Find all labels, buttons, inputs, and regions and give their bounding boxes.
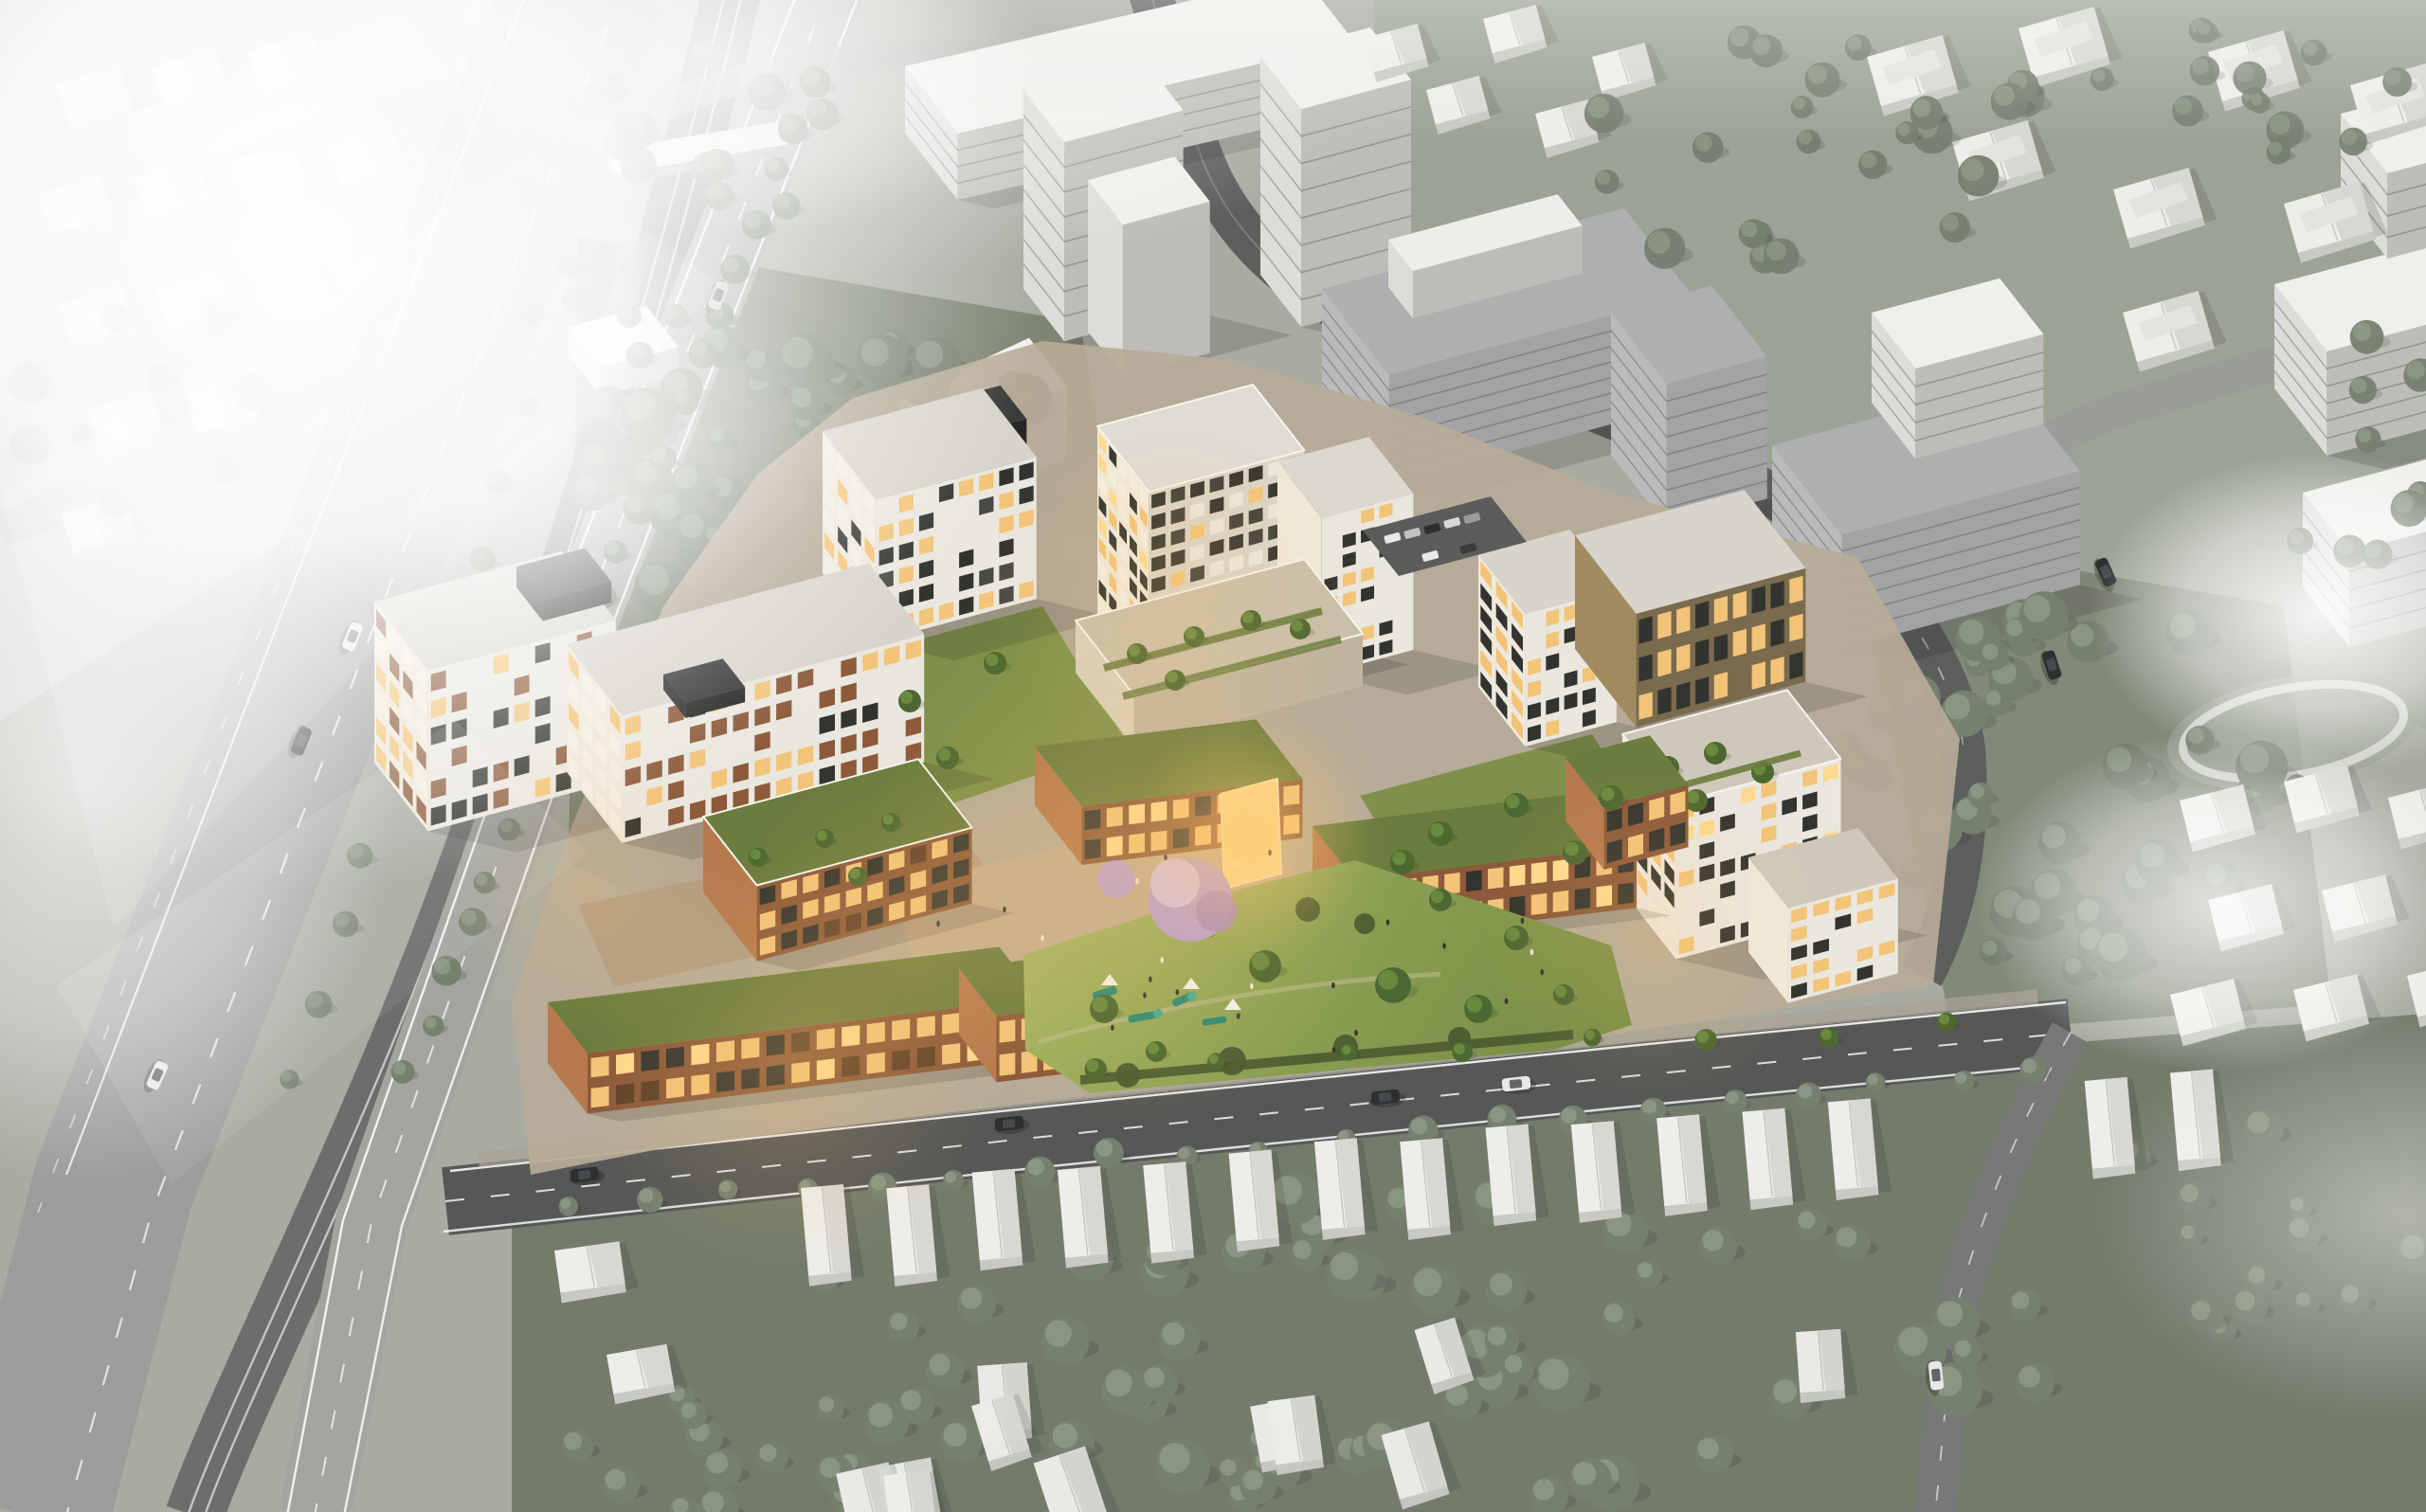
- tree-highlight: [1293, 1240, 1312, 1259]
- window: [1752, 623, 1765, 652]
- warm-glow: [1483, 763, 1824, 1104]
- tree-highlight: [1490, 1107, 1506, 1123]
- tree-highlight: [2358, 428, 2372, 442]
- tree-highlight: [1572, 1462, 1596, 1485]
- tree-highlight: [1741, 222, 1757, 238]
- window: [1657, 649, 1671, 677]
- window: [1714, 634, 1728, 661]
- tree-highlight: [2269, 142, 2282, 155]
- tree-highlight: [393, 1062, 407, 1075]
- window: [1695, 639, 1709, 666]
- aerial-render: [0, 0, 2426, 1512]
- tree-highlight: [1411, 1118, 1427, 1134]
- person: [1386, 919, 1390, 925]
- tree-highlight: [2023, 595, 2050, 621]
- tree-highlight: [1706, 744, 1718, 756]
- tree-highlight: [1773, 1379, 1797, 1403]
- tree-highlight: [1392, 852, 1405, 865]
- tree-highlight: [1945, 694, 1970, 720]
- tree-highlight: [1955, 1341, 1971, 1357]
- tree-highlight: [1959, 620, 1984, 645]
- tree-highlight: [1868, 1074, 1878, 1085]
- tree-highlight: [1162, 1323, 1185, 1345]
- tree-highlight: [1331, 1252, 1358, 1280]
- window: [1695, 601, 1709, 628]
- tree-highlight: [929, 1354, 950, 1375]
- tree-highlight: [961, 1287, 983, 1309]
- tree-highlight: [1105, 1370, 1132, 1396]
- tree-highlight: [1955, 1072, 1966, 1084]
- tree-highlight: [1144, 1367, 1165, 1388]
- tree-highlight: [1538, 1359, 1569, 1390]
- tree-highlight: [1096, 1140, 1113, 1157]
- window: [1733, 591, 1747, 619]
- warm-glow: [1128, 712, 1374, 959]
- window: [1638, 616, 1652, 643]
- tree-highlight: [1342, 1045, 1351, 1054]
- tree-highlight: [2353, 323, 2372, 342]
- window: [1676, 644, 1690, 673]
- tree-highlight: [1837, 1227, 1857, 1248]
- tree-highlight: [1505, 1355, 1523, 1373]
- car-glass: [1003, 1119, 1016, 1128]
- window: [1733, 667, 1747, 694]
- tree-highlight: [1726, 1091, 1738, 1104]
- window: [1714, 672, 1728, 699]
- tree-highlight: [1597, 171, 1610, 185]
- tree-highlight: [1698, 1438, 1719, 1459]
- window: [1676, 682, 1690, 711]
- tree-highlight: [1982, 644, 1999, 660]
- tree-highlight: [560, 1198, 570, 1209]
- window: [1752, 585, 1765, 614]
- tree-highlight: [1638, 1262, 1653, 1277]
- window: [1752, 661, 1765, 690]
- window: [1789, 576, 1802, 603]
- tree-highlight: [900, 692, 913, 704]
- window: [1770, 581, 1783, 609]
- tree-highlight: [901, 1390, 922, 1411]
- window: [1733, 629, 1747, 657]
- tree-highlight: [564, 1432, 582, 1450]
- tree-highlight: [1488, 1326, 1507, 1345]
- window: [1466, 870, 1482, 891]
- car-glass: [578, 1170, 591, 1180]
- tree-highlight: [1506, 795, 1519, 808]
- tree-highlight: [1766, 241, 1786, 261]
- car-glass: [1931, 1369, 1941, 1382]
- car-glass: [1510, 1079, 1523, 1089]
- tree-highlight: [1986, 691, 2001, 706]
- tree-highlight: [1159, 1443, 1189, 1473]
- tree-highlight: [1820, 1029, 1832, 1040]
- render-canvas: [0, 0, 2426, 1512]
- window: [1638, 692, 1652, 719]
- tree-highlight: [944, 1423, 968, 1447]
- person: [1442, 943, 1446, 948]
- tree-highlight: [1378, 970, 1398, 990]
- tree-highlight: [425, 1017, 436, 1028]
- tree-highlight: [1942, 214, 1959, 231]
- warm-glow: [730, 753, 1090, 1113]
- window: [1657, 611, 1671, 639]
- tree-highlight: [2351, 378, 2366, 393]
- tree-highlight: [1454, 1043, 1465, 1054]
- window: [1789, 652, 1802, 679]
- tree-highlight: [1220, 1459, 1236, 1475]
- tree-highlight: [606, 1469, 626, 1490]
- tree-highlight: [1561, 1107, 1577, 1124]
- tree-highlight: [1937, 1301, 1963, 1326]
- window: [1770, 657, 1783, 685]
- tree-highlight: [706, 1452, 728, 1474]
- tree-highlight: [1533, 1479, 1555, 1501]
- person: [1332, 1047, 1336, 1053]
- tree-highlight: [2019, 1366, 2040, 1388]
- window: [1789, 614, 1802, 641]
- tree-highlight: [1798, 1085, 1812, 1099]
- tree-highlight: [1027, 1159, 1044, 1176]
- tree-highlight: [2012, 1292, 2029, 1309]
- car-glass: [1379, 1092, 1392, 1102]
- tree-highlight: [1414, 1268, 1442, 1296]
- person: [1354, 1030, 1358, 1035]
- tree-highlight: [868, 1403, 893, 1428]
- tree-highlight: [890, 1313, 907, 1330]
- tree-highlight: [819, 1396, 834, 1412]
- window: [1657, 687, 1671, 715]
- tree-highlight: [1962, 158, 1984, 181]
- tree-highlight: [759, 1445, 776, 1462]
- tree-highlight: [1045, 1321, 1072, 1347]
- window: [1695, 676, 1709, 704]
- window: [1770, 619, 1783, 647]
- tree-highlight: [2022, 1059, 2037, 1073]
- tree-highlight: [1898, 1327, 1928, 1357]
- tree-highlight: [1604, 1304, 1623, 1323]
- tree-highlight: [1861, 153, 1877, 169]
- tree-highlight: [1467, 997, 1483, 1013]
- tree-highlight: [680, 1403, 697, 1419]
- window: [1714, 596, 1728, 623]
- tree-highlight: [1053, 1423, 1077, 1448]
- window: [1676, 606, 1690, 635]
- tree-highlight: [1702, 1230, 1723, 1251]
- tree-highlight: [1430, 823, 1443, 837]
- tree-highlight: [1798, 1212, 1816, 1230]
- tree-highlight: [1431, 891, 1443, 903]
- tree-highlight: [1490, 1273, 1512, 1296]
- tree-highlight: [1939, 1015, 1949, 1025]
- tree-highlight: [1970, 784, 1984, 799]
- tree-highlight: [1178, 1147, 1189, 1159]
- tree-highlight: [1648, 231, 1671, 254]
- tree-highlight: [1242, 1470, 1263, 1491]
- tree-highlight: [2406, 361, 2425, 380]
- window: [1638, 654, 1652, 681]
